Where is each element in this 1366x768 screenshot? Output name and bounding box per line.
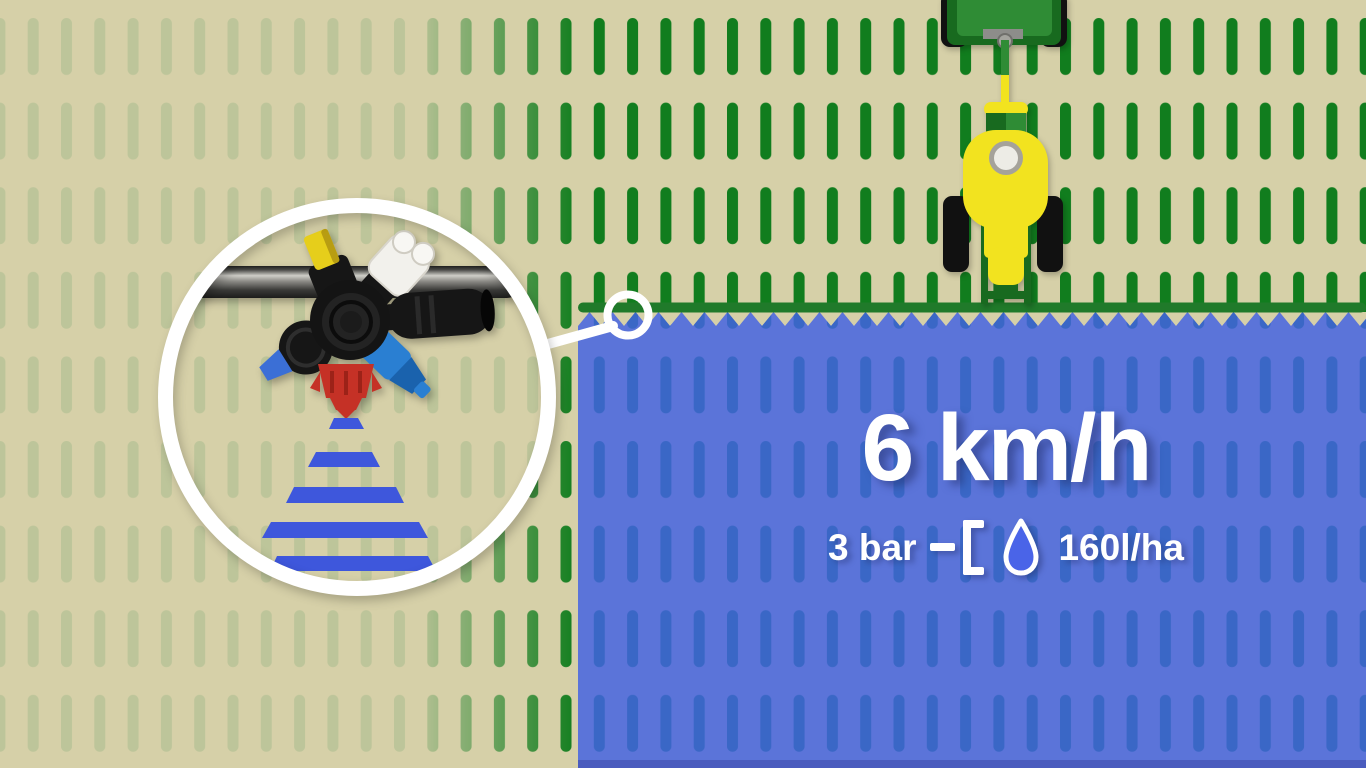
pressure-label: 3 bar bbox=[828, 529, 916, 566]
bracket-icon bbox=[963, 520, 984, 575]
spray-fan-stripe bbox=[329, 418, 364, 429]
spray-settings-panel: 6 km/h 3 bar 160l/ha bbox=[788, 401, 1224, 576]
droplet-icon bbox=[1002, 518, 1040, 576]
sprayed-area-bottom-edge bbox=[578, 760, 1366, 768]
red-cap-rib bbox=[344, 371, 348, 395]
sprayer-tank-foot bbox=[988, 247, 1024, 285]
red-cap-rib bbox=[358, 371, 362, 393]
pressure-rate-row: 3 bar 160l/ha bbox=[788, 518, 1224, 576]
spray-fan-stripe bbox=[262, 522, 428, 538]
spray-fan-stripe bbox=[286, 487, 404, 503]
field-scene bbox=[0, 0, 1366, 768]
drawbar-green bbox=[1001, 40, 1009, 80]
sprayer-infographic: 6 km/h 3 bar 160l/ha bbox=[0, 0, 1366, 768]
cylinder-body bbox=[386, 287, 493, 340]
turret-hub-center bbox=[340, 311, 362, 333]
speed-label: 6 km/h bbox=[788, 401, 1224, 496]
tank-lid bbox=[994, 146, 1018, 170]
spray-fan-stripe bbox=[270, 556, 436, 571]
rate-label: 160l/ha bbox=[1058, 529, 1183, 566]
red-cap-rib bbox=[330, 371, 334, 393]
spray-fan-stripe bbox=[308, 452, 380, 467]
sprayer-boom-bar bbox=[578, 303, 1366, 313]
dash-connector bbox=[930, 543, 955, 551]
droplet-shape bbox=[1006, 521, 1036, 573]
